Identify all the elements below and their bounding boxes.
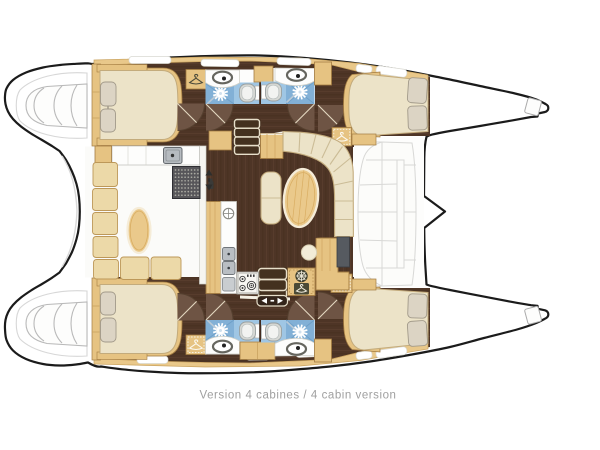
svg-text:Version 4 cabines / 4 cabin ve: Version 4 cabines / 4 cabin version bbox=[200, 390, 397, 402]
